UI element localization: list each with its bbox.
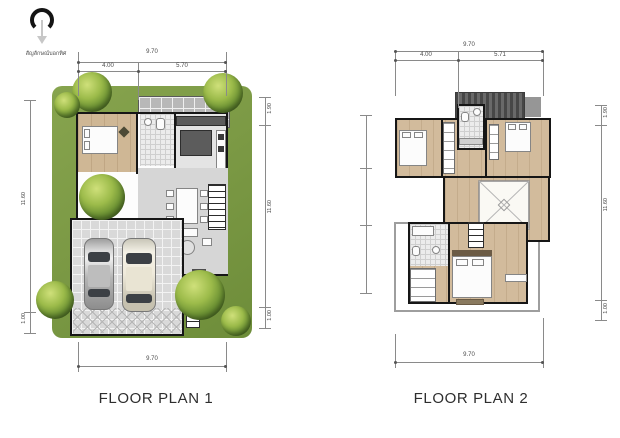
plan1-title: FLOOR PLAN 1	[76, 390, 236, 407]
dim-tick	[595, 125, 607, 126]
dim-tick	[360, 293, 372, 294]
plan2-dim-top-right-label: 5.71	[484, 52, 516, 59]
plan1-kitchen-island	[180, 130, 212, 156]
plan2-dim-left-line	[366, 115, 367, 293]
dim-tick	[259, 328, 271, 329]
plan1-bedroom-wall	[136, 114, 138, 174]
dim-tick	[224, 70, 227, 73]
north-arrow-head-icon	[37, 36, 47, 44]
plan1-dim-top-segment-line	[78, 71, 226, 72]
dim-tick	[77, 365, 80, 368]
plan1-kitchen-counter	[176, 116, 226, 126]
plan2-dim-extension	[543, 51, 544, 96]
tree-icon	[79, 174, 125, 220]
plan1-dim-right-bottom-label: 1.00	[267, 310, 274, 321]
plan2-wardrobe-2	[489, 124, 499, 160]
plan1-dim-bottom-line	[78, 366, 226, 367]
dim-tick	[24, 100, 36, 101]
plan1-chair	[166, 190, 174, 197]
dim-tick	[259, 125, 271, 126]
dim-tick	[394, 59, 397, 62]
car-roof	[126, 267, 152, 291]
plan2-bed-2-pillow	[414, 132, 423, 138]
plan1-dim-top-right-label: 5.70	[166, 63, 198, 70]
dim-tick	[77, 70, 80, 73]
dim-tick	[24, 333, 36, 334]
plan2-dim-top-left-label: 4.00	[410, 52, 442, 59]
tree-icon	[54, 92, 80, 118]
dim-tick	[360, 168, 372, 169]
dim-tick	[259, 307, 271, 308]
car-icon	[122, 238, 156, 312]
plan1-chair	[166, 203, 174, 210]
plan2-master-wall	[448, 224, 450, 302]
floor-plan-sheet: สัญลักษณ์บอกทิศ	[0, 0, 620, 438]
tree-icon	[221, 306, 251, 336]
plan1-dim-extension	[138, 62, 139, 100]
plan1-chair	[200, 203, 208, 210]
north-caption: สัญลักษณ์บอกทิศ	[14, 50, 78, 58]
plan2-bath-wall	[485, 118, 487, 178]
plan2-toilet-lower	[412, 246, 420, 256]
plan1-chair	[200, 216, 208, 223]
plan1-stairs	[208, 184, 226, 230]
plan1-dim-top-total-label: 9.70	[136, 49, 168, 56]
plan2-sink-lower	[432, 246, 440, 254]
plan2-dim-top-total-label: 9.70	[453, 42, 485, 49]
plan2-title: FLOOR PLAN 2	[391, 390, 551, 407]
plan2-bed-2-pillow	[402, 132, 411, 138]
plan2-sink-top	[473, 108, 481, 116]
plan2-dim-extension	[395, 51, 396, 96]
north-arrow-stem	[41, 20, 43, 36]
plan1-stove-icon	[218, 134, 224, 140]
plan2-dim-right-main-label: 11.60	[603, 198, 610, 211]
plan2-bathtub	[412, 226, 434, 236]
plan2-master-pillow	[456, 259, 468, 266]
dim-tick	[394, 361, 397, 364]
dim-tick	[77, 61, 80, 64]
plan2-roof-edge	[525, 97, 541, 117]
plan1-dim-extension	[78, 52, 79, 96]
dim-tick	[541, 59, 544, 62]
dim-tick	[595, 320, 607, 321]
car-windshield	[88, 252, 110, 262]
plan2-bed-3-pillow	[519, 124, 527, 130]
dim-tick	[595, 105, 607, 106]
plan2-dim-bottom-line	[395, 362, 543, 363]
plan2-dim-top-segment-line	[395, 60, 543, 61]
plan2-bed-bench	[456, 299, 484, 305]
dim-tick	[259, 97, 271, 98]
plan2-dim-right-top-label: 1.90	[603, 107, 610, 118]
plan1-dim-left-main-label: 11.60	[21, 192, 28, 205]
plan1-side-table	[202, 238, 212, 246]
dim-tick	[137, 70, 140, 73]
car-rear-window	[88, 289, 110, 297]
plan2-wardrobe	[443, 122, 455, 174]
dim-tick	[541, 50, 544, 53]
car-rear-window	[126, 294, 152, 303]
plan1-dim-right-top-label: 1.90	[267, 103, 274, 114]
plan1-bed-pillow	[84, 129, 90, 138]
plan1-dim-top-left-label: 4.00	[92, 63, 124, 70]
dim-tick	[394, 50, 397, 53]
car-windshield	[126, 253, 152, 264]
dim-tick	[541, 361, 544, 364]
tree-icon	[175, 270, 225, 320]
tree-icon	[36, 281, 74, 319]
plan2-toilet-top	[461, 112, 469, 122]
plan2-vanity	[459, 138, 483, 145]
plan1-toilet	[156, 118, 165, 130]
dim-tick	[224, 61, 227, 64]
plan1-dim-right-main-label: 11.60	[267, 200, 274, 213]
dim-tick	[457, 59, 460, 62]
plan1-chair	[200, 190, 208, 197]
plan2-master-pillow	[472, 259, 484, 266]
car-roof	[88, 265, 110, 287]
plan2-dim-bottom-label: 9.70	[453, 352, 485, 359]
plan2-dim-right-line	[601, 105, 602, 320]
plan2-bed-3-pillow	[508, 124, 516, 130]
plan1-dim-bottom-label: 9.70	[136, 356, 168, 363]
plan1-driveway-hatch	[73, 308, 181, 333]
plan1-bed-pillow-2	[84, 141, 90, 150]
plan2-stairs	[468, 222, 484, 248]
plan1-sink	[144, 118, 152, 126]
plan2-dim-right-bottom-label: 1.00	[603, 303, 610, 314]
dim-tick	[360, 115, 372, 116]
tree-icon	[203, 73, 243, 113]
car-icon	[84, 238, 114, 310]
plan1-oven-icon	[218, 146, 224, 152]
dim-tick	[595, 300, 607, 301]
plan2-walk-in-closet	[410, 268, 436, 302]
plan1-dim-left-bottom-label: 1.00	[21, 313, 28, 324]
dim-tick	[224, 365, 227, 368]
plan1-dim-right-line	[265, 97, 266, 328]
plan2-desk	[505, 274, 527, 282]
plan1-dim-left-line	[30, 100, 31, 333]
plan1-dim-extension	[226, 52, 227, 96]
north-symbol: สัญลักษณ์บอกทิศ	[0, 0, 90, 64]
dim-tick	[360, 225, 372, 226]
